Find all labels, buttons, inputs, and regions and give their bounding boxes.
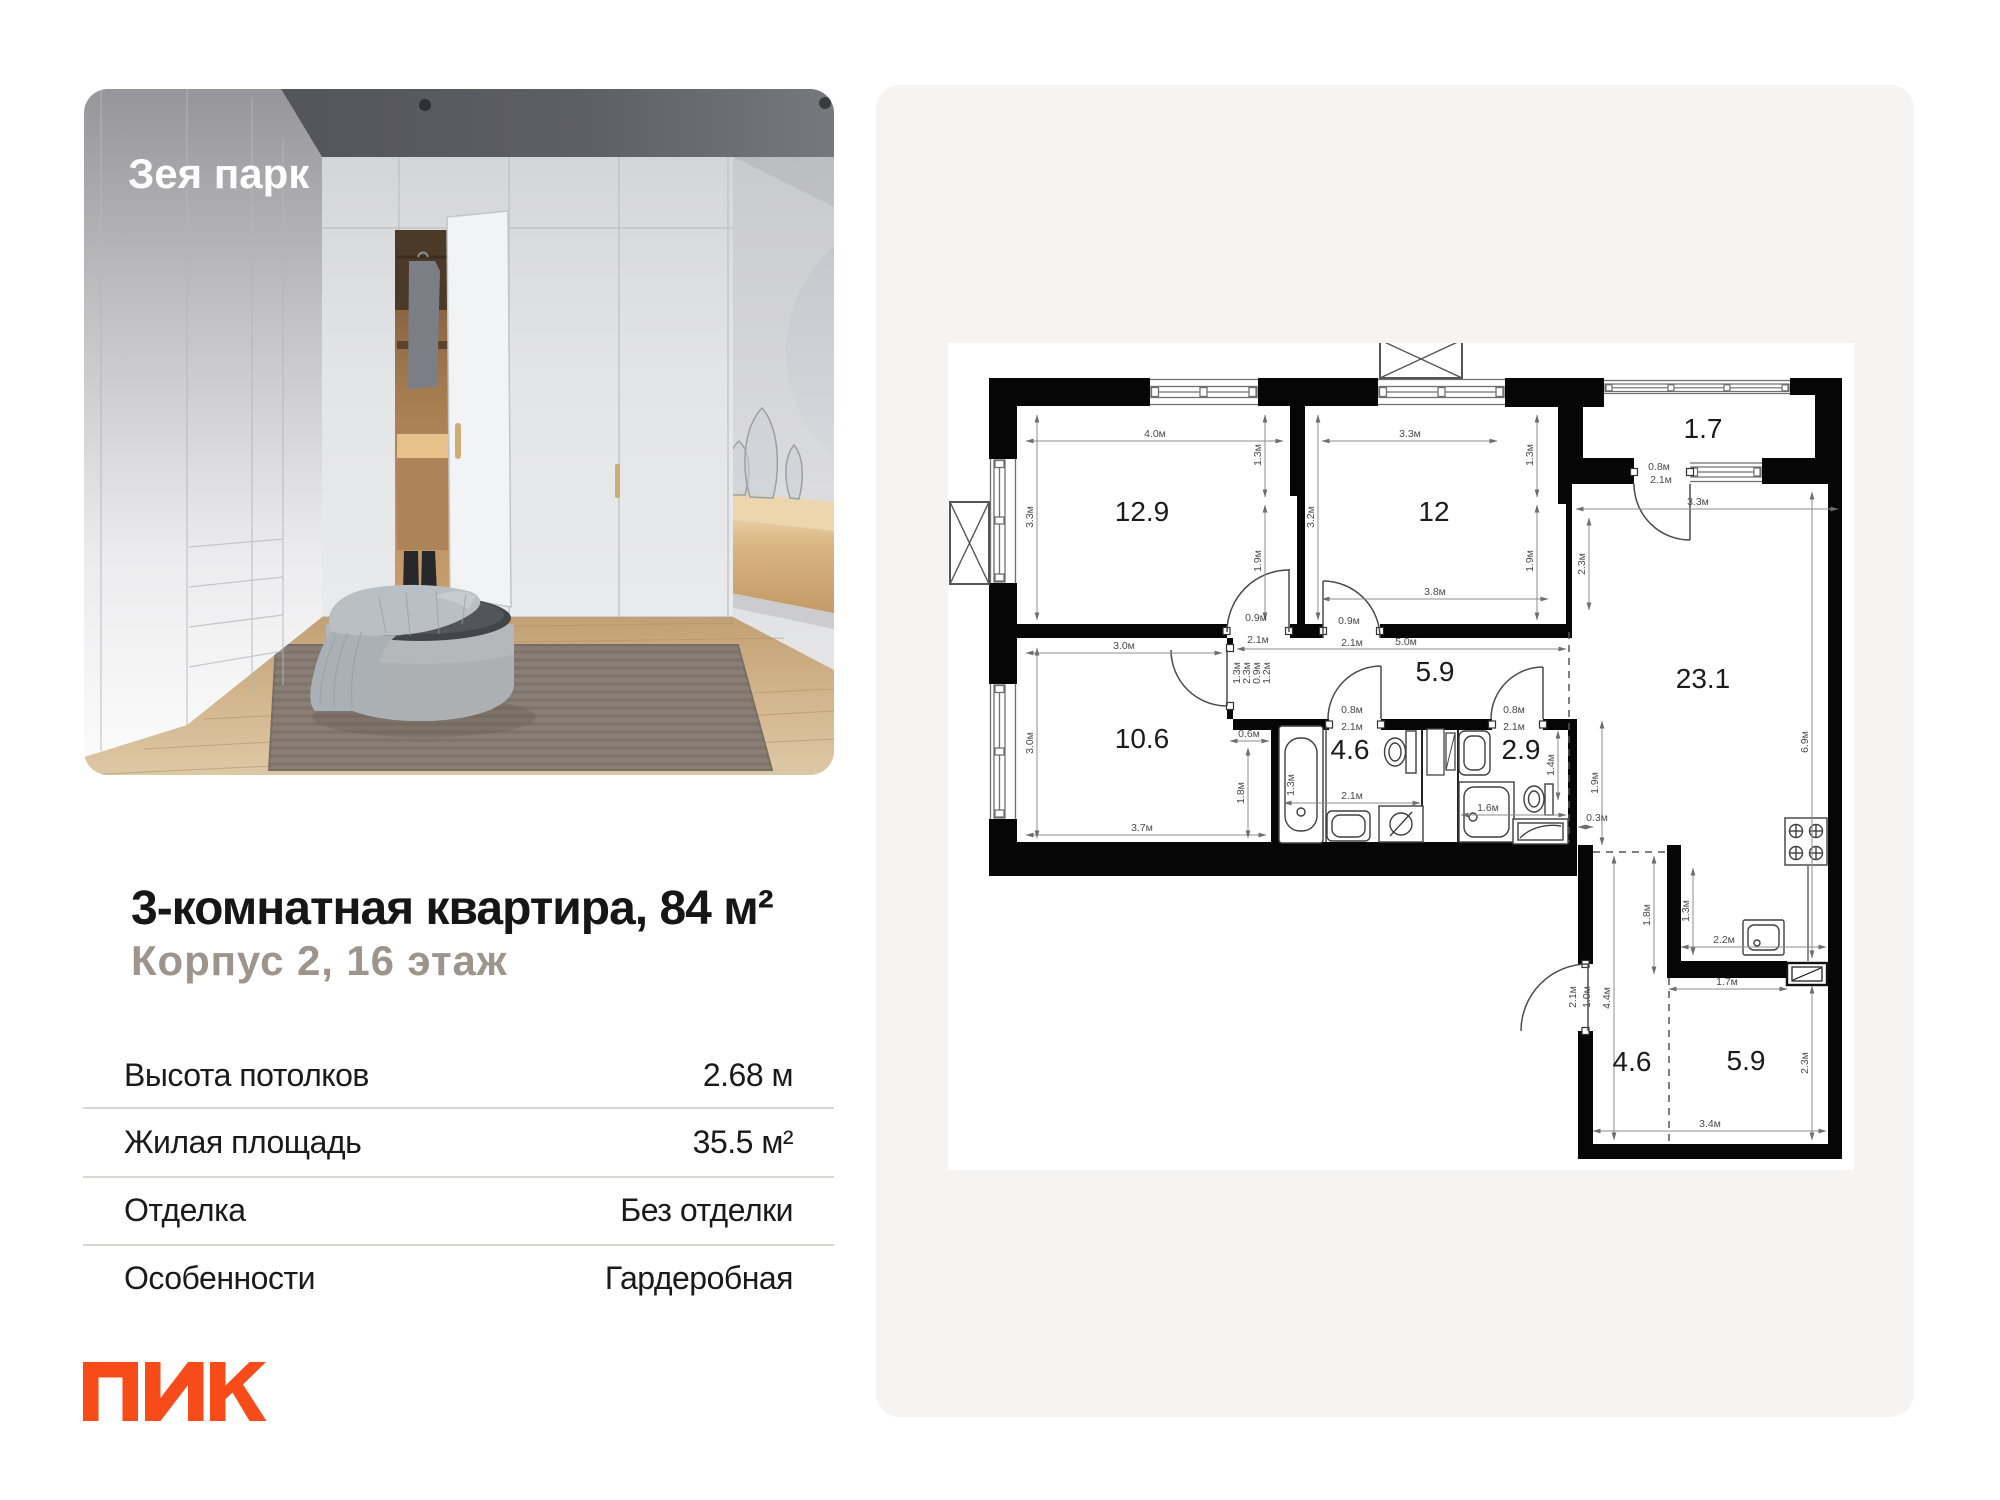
svg-text:3.0м: 3.0м xyxy=(1024,732,1036,754)
svg-text:1.3м: 1.3м xyxy=(1524,444,1536,466)
svg-text:6.9м: 6.9м xyxy=(1799,731,1811,753)
svg-text:2.1м: 2.1м xyxy=(1503,721,1525,733)
svg-text:5.9: 5.9 xyxy=(1416,656,1455,687)
svg-text:1.3м: 1.3м xyxy=(1680,900,1692,922)
svg-text:3.3м: 3.3м xyxy=(1687,496,1709,508)
svg-text:1.6м: 1.6м xyxy=(1477,802,1499,814)
svg-text:2.1м: 2.1м xyxy=(1341,637,1363,649)
svg-text:1.9м: 1.9м xyxy=(1524,550,1536,572)
svg-text:2.2м: 2.2м xyxy=(1713,934,1735,946)
svg-text:0.8м: 0.8м xyxy=(1503,704,1525,716)
svg-text:5.9: 5.9 xyxy=(1727,1045,1766,1076)
svg-text:2.3м: 2.3м xyxy=(1576,553,1588,575)
svg-text:1.9м: 1.9м xyxy=(1589,772,1601,794)
svg-text:3.8м: 3.8м xyxy=(1424,586,1446,598)
svg-text:Зея парк: Зея парк xyxy=(128,150,310,197)
svg-text:4.6: 4.6 xyxy=(1613,1046,1652,1077)
svg-text:3.3м: 3.3м xyxy=(1024,506,1036,528)
svg-text:3.2м: 3.2м xyxy=(1305,506,1317,528)
svg-text:0.9м: 0.9м xyxy=(1245,612,1267,624)
svg-text:1.2м: 1.2м xyxy=(1261,662,1273,684)
svg-text:1.8м: 1.8м xyxy=(1235,782,1247,804)
svg-text:2.1м: 2.1м xyxy=(1650,474,1672,486)
svg-text:0.3м: 0.3м xyxy=(1586,812,1608,824)
svg-text:3.0м: 3.0м xyxy=(1113,640,1135,652)
svg-text:0.8м: 0.8м xyxy=(1648,461,1670,473)
svg-text:5.0м: 5.0м xyxy=(1395,636,1417,648)
svg-text:23.1: 23.1 xyxy=(1676,663,1731,694)
svg-text:2.3м: 2.3м xyxy=(1799,1052,1811,1074)
svg-text:2.9: 2.9 xyxy=(1502,734,1541,765)
svg-text:1.8м: 1.8м xyxy=(1641,904,1653,926)
svg-text:1.7: 1.7 xyxy=(1684,413,1723,444)
svg-text:1.9м: 1.9м xyxy=(1252,550,1264,572)
svg-text:2.1м: 2.1м xyxy=(1247,634,1269,646)
svg-text:4.4м: 4.4м xyxy=(1601,987,1613,1009)
svg-text:3.7м: 3.7м xyxy=(1131,822,1153,834)
svg-text:2.1м: 2.1м xyxy=(1341,790,1363,802)
svg-text:3.4м: 3.4м xyxy=(1699,1118,1721,1130)
svg-text:10.6: 10.6 xyxy=(1115,723,1170,754)
svg-text:12.9: 12.9 xyxy=(1115,496,1170,527)
svg-text:0.6м: 0.6м xyxy=(1238,728,1260,740)
svg-text:1.7м: 1.7м xyxy=(1716,976,1738,988)
svg-text:3.3м: 3.3м xyxy=(1399,428,1421,440)
svg-text:1.4м: 1.4м xyxy=(1545,754,1557,776)
svg-text:4.6: 4.6 xyxy=(1331,734,1370,765)
svg-text:0.9м: 0.9м xyxy=(1338,615,1360,627)
svg-text:4.0м: 4.0м xyxy=(1144,428,1166,440)
svg-text:1.3м: 1.3м xyxy=(1285,774,1297,796)
svg-text:12: 12 xyxy=(1418,496,1449,527)
svg-text:1.0м: 1.0м xyxy=(1581,986,1593,1008)
svg-text:2.1м: 2.1м xyxy=(1341,721,1363,733)
svg-text:1.3м: 1.3м xyxy=(1252,444,1264,466)
svg-text:0.8м: 0.8м xyxy=(1341,704,1363,716)
svg-text:2.1м: 2.1м xyxy=(1567,986,1579,1008)
